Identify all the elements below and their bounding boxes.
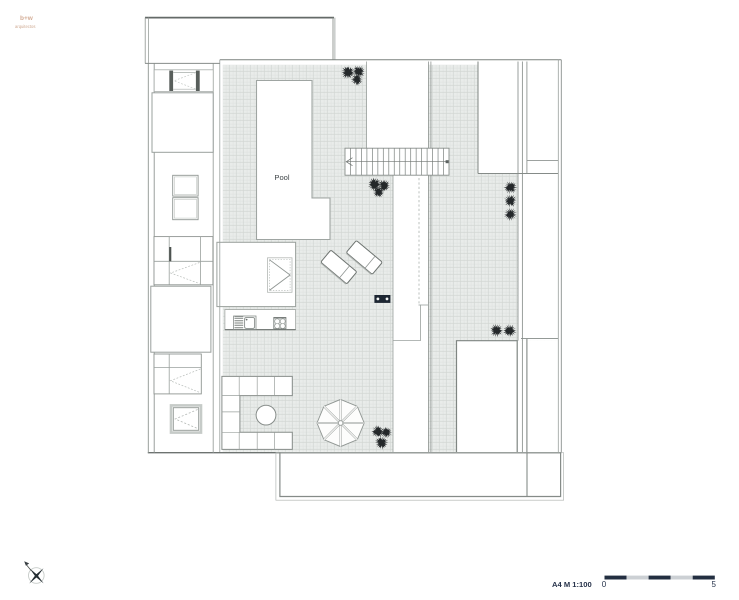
svg-text:b+w: b+w <box>20 15 34 22</box>
svg-text:0: 0 <box>602 580 607 589</box>
svg-text:5: 5 <box>712 580 717 589</box>
svg-text:arquitectos: arquitectos <box>15 24 35 29</box>
svg-text:A4 M 1:100: A4 M 1:100 <box>552 580 592 589</box>
svg-text:Pool: Pool <box>274 173 290 182</box>
